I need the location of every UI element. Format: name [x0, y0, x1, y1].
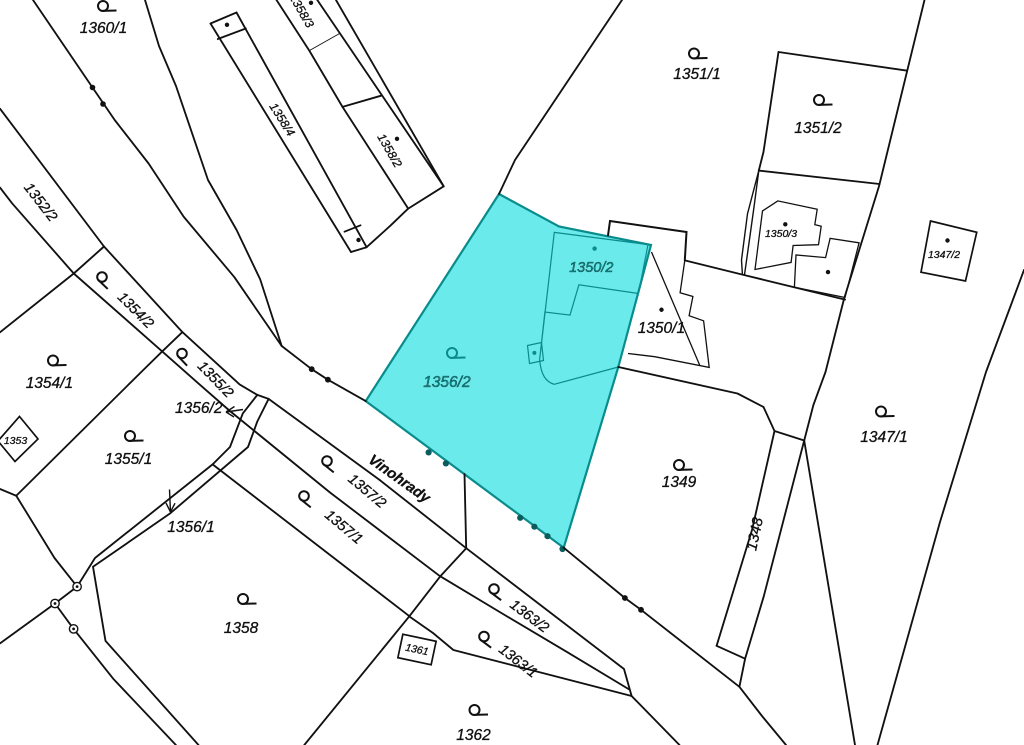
svg-text:1350/2: 1350/2	[569, 260, 613, 276]
svg-text:1355/1: 1355/1	[105, 451, 152, 468]
svg-text:1347/1: 1347/1	[860, 429, 907, 446]
svg-text:1356/2: 1356/2	[175, 400, 223, 417]
svg-text:1356/1: 1356/1	[167, 519, 214, 536]
svg-text:1358: 1358	[224, 620, 259, 637]
svg-text:1354/1: 1354/1	[26, 375, 73, 392]
svg-text:1347/2: 1347/2	[928, 249, 960, 261]
svg-text:1349: 1349	[662, 474, 697, 491]
svg-text:1350/3: 1350/3	[765, 228, 797, 240]
svg-text:1351/1: 1351/1	[673, 66, 720, 83]
svg-text:1351/2: 1351/2	[794, 120, 842, 137]
svg-text:1356/2: 1356/2	[423, 374, 471, 391]
svg-text:1362: 1362	[456, 727, 491, 744]
svg-text:1353: 1353	[4, 435, 28, 447]
svg-text:1360/1: 1360/1	[80, 20, 127, 37]
svg-text:1350/1: 1350/1	[638, 320, 685, 337]
